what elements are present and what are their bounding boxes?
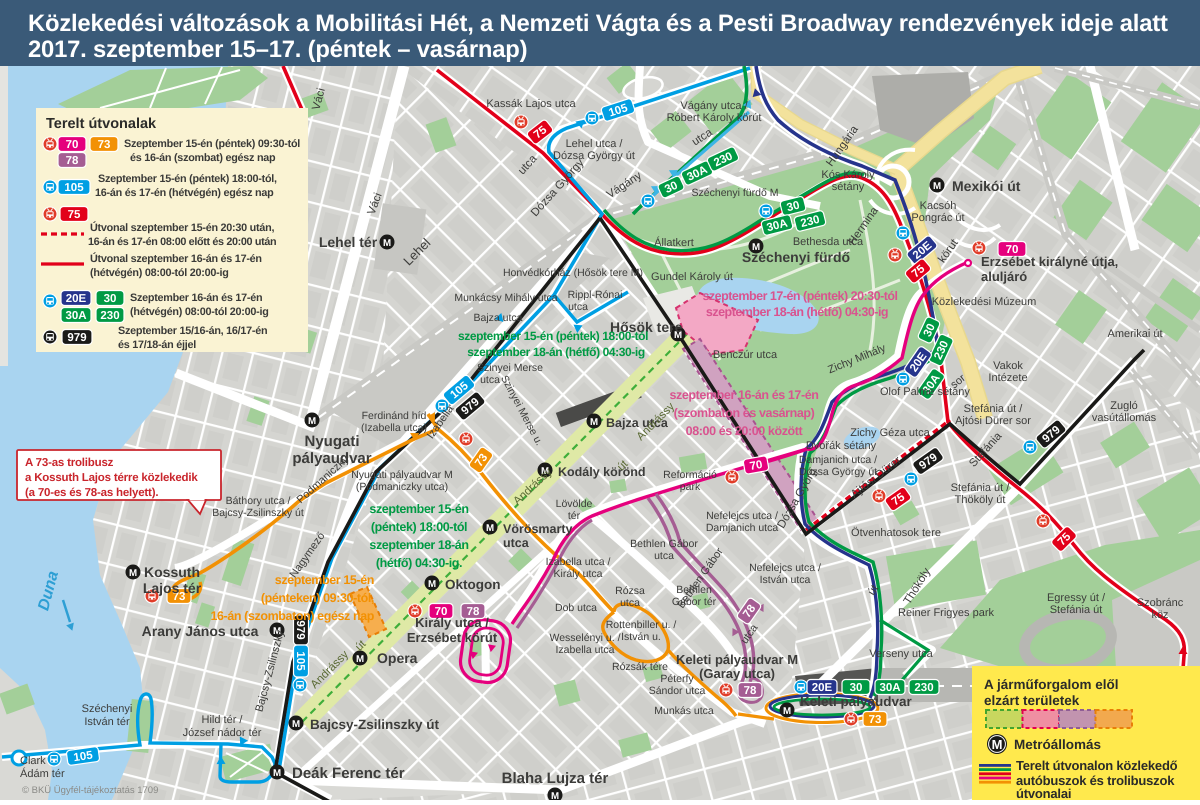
svg-text:M: M — [308, 416, 316, 427]
svg-text:útvonalai: útvonalai — [1016, 786, 1071, 800]
svg-text:Izabella utca /: Izabella utca / — [546, 556, 611, 568]
svg-text:szeptember 18-án (hétfő) 04:30: szeptember 18-án (hétfő) 04:30-ig — [467, 345, 645, 359]
svg-text:Metróállomás: Metróállomás — [1014, 737, 1101, 752]
svg-text:(Izabella utca): (Izabella utca) — [361, 422, 427, 434]
svg-text:78: 78 — [744, 685, 757, 697]
svg-text:Intézete: Intézete — [988, 372, 1027, 384]
svg-text:elzárt területek: elzárt területek — [984, 693, 1080, 708]
svg-text:Széchenyi fürdő: Széchenyi fürdő — [742, 249, 850, 265]
svg-text:Stefánia út /: Stefánia út / — [951, 482, 1011, 494]
svg-text:(Podmaniczky utca): (Podmaniczky utca) — [356, 481, 448, 493]
svg-text:Bajcsy-Zsilinszky út: Bajcsy-Zsilinszky út — [310, 717, 440, 732]
svg-text:Nyugati pályaudvar M: Nyugati pályaudvar M — [351, 469, 453, 481]
svg-text:István u.: István u. — [621, 631, 661, 643]
svg-text:Ajtósi Dürer sor: Ajtósi Dürer sor — [955, 415, 1031, 427]
svg-text:köz: köz — [1151, 609, 1168, 621]
svg-text:Erzsébet körút: Erzsébet körút — [407, 630, 498, 645]
svg-text:M: M — [356, 654, 364, 665]
svg-text:M: M — [590, 417, 598, 428]
svg-text:Széchenyi: Széchenyi — [82, 703, 133, 715]
svg-text:105: 105 — [64, 182, 84, 194]
svg-text:Egressy út /: Egressy út / — [1047, 592, 1106, 604]
svg-text:78: 78 — [66, 155, 79, 167]
svg-text:20E: 20E — [812, 682, 833, 694]
svg-text:utca: utca — [480, 374, 500, 386]
svg-text:aluljáró: aluljáró — [981, 269, 1027, 284]
svg-text:Ötvenhatosok tere: Ötvenhatosok tere — [851, 526, 941, 539]
svg-text:73: 73 — [98, 139, 111, 151]
svg-text:Bethesda utca: Bethesda utca — [793, 236, 864, 248]
svg-text:(Garay utca): (Garay utca) — [699, 666, 775, 681]
svg-text:Bethlen: Bethlen — [676, 584, 712, 596]
svg-text:Ádám tér: Ádám tér — [20, 767, 65, 780]
svg-text:Péterfy: Péterfy — [660, 673, 694, 685]
svg-text:(péntek) 18:00-tól: (péntek) 18:00-tól — [371, 520, 467, 534]
svg-text:Szeptember 15-én (péntek) 09:3: Szeptember 15-én (péntek) 09:30-tól — [124, 138, 300, 150]
svg-text:Reformáció: Reformáció — [663, 469, 717, 481]
svg-text:park: park — [680, 481, 701, 493]
svg-text:Zugló: Zugló — [1110, 400, 1138, 412]
svg-text:Kacsóh: Kacsóh — [920, 200, 957, 212]
svg-text:M: M — [933, 181, 941, 192]
svg-text:utca: utca — [620, 597, 640, 609]
svg-text:© BKÜ Ügyfél-tájékoztatás 1709: © BKÜ Ügyfél-tájékoztatás 1709 — [22, 785, 158, 796]
svg-text:(hétvégén) 08:00-tól 20:00-ig: (hétvégén) 08:00-tól 20:00-ig — [130, 306, 269, 318]
svg-text:Arany János utca: Arany János utca — [142, 623, 259, 639]
svg-text:20E: 20E — [66, 293, 87, 305]
svg-text:Sándor utca: Sándor utca — [649, 685, 706, 697]
svg-text:230: 230 — [914, 682, 933, 694]
svg-text:Wesselényi u. /: Wesselényi u. / — [549, 632, 620, 644]
svg-text:30: 30 — [850, 682, 863, 694]
svg-text:szeptember 18-án: szeptember 18-án — [369, 538, 468, 552]
svg-text:979: 979 — [67, 332, 86, 344]
svg-text:Vakok: Vakok — [993, 360, 1023, 372]
svg-text:Stefánia út: Stefánia út — [1050, 604, 1103, 616]
svg-text:70: 70 — [749, 459, 764, 473]
svg-text:Verseny utca: Verseny utca — [869, 648, 933, 660]
svg-text:Oktogon: Oktogon — [445, 577, 501, 592]
svg-text:Terelt útvonalak: Terelt útvonalak — [46, 116, 157, 132]
svg-text:Kossuth: Kossuth — [144, 564, 200, 580]
svg-text:Rottenbiller u. /: Rottenbiller u. / — [606, 619, 677, 631]
svg-text:Szobránc: Szobránc — [1137, 597, 1184, 609]
svg-text:Keleti pályaudvar M: Keleti pályaudvar M — [676, 652, 798, 667]
svg-text:a Kossuth Lajos térre közleked: a Kossuth Lajos térre közlekedik — [25, 472, 198, 484]
svg-text:Király utca /: Király utca / — [415, 615, 489, 630]
svg-text:Dob utca: Dob utca — [555, 602, 597, 614]
svg-text:Damjanich utca: Damjanich utca — [706, 522, 779, 534]
svg-text:30A: 30A — [879, 682, 900, 694]
svg-text:Honvédkórház (Hősök tere M): Honvédkórház (Hősök tere M) — [503, 267, 643, 279]
svg-text:16-án és 17-én 08:00 előtt és: 16-án és 17-én 08:00 előtt és 20:00 után — [88, 236, 276, 248]
svg-text:Clark: Clark — [20, 755, 46, 767]
svg-text:979: 979 — [294, 620, 306, 639]
svg-text:Dvořák sétány: Dvořák sétány — [806, 440, 877, 452]
svg-text:Erzsébet királyné útja,: Erzsébet királyné útja, — [981, 254, 1118, 269]
svg-text:(hétfő) 04:30-ig.: (hétfő) 04:30-ig. — [376, 556, 462, 570]
svg-text:szeptember 17-én (péntek) 20:3: szeptember 17-én (péntek) 20:30-tól — [702, 289, 897, 303]
svg-text:(hétvégén) 08:00-tól 20:00-ig: (hétvégén) 08:00-tól 20:00-ig — [90, 267, 229, 279]
svg-text:Lehel tér: Lehel tér — [319, 234, 378, 250]
svg-text:M: M — [783, 706, 791, 717]
svg-text:08:00 és 20:00 között: 08:00 és 20:00 között — [686, 424, 804, 438]
svg-text:Király utca: Király utca — [553, 568, 602, 580]
svg-text:Báthory utca /: Báthory utca / — [226, 495, 291, 507]
svg-text:utca: utca — [654, 550, 674, 562]
svg-text:Szeptember 15/16-án, 16/17-én: Szeptember 15/16-án, 16/17-én — [118, 325, 267, 337]
svg-text:Szinyei Merse: Szinyei Merse — [477, 362, 543, 374]
svg-text:sétány: sétány — [832, 181, 865, 193]
svg-text:Ferdinánd híd: Ferdinánd híd — [362, 410, 427, 422]
svg-text:utca: utca — [503, 536, 530, 550]
svg-text:Nefelejcs utca /: Nefelejcs utca / — [706, 510, 778, 522]
svg-text:A járműforgalom elől: A járműforgalom elől — [984, 677, 1119, 692]
svg-text:Opera: Opera — [377, 650, 418, 666]
svg-text:Közlekedési Múzeum: Közlekedési Múzeum — [932, 296, 1037, 308]
svg-text:Lehel utca /: Lehel utca / — [566, 138, 624, 150]
svg-text:szeptember 15-én: szeptember 15-én — [369, 502, 468, 516]
svg-text:Nyugati: Nyugati — [304, 433, 359, 450]
svg-text:és 17/18-án éjjel: és 17/18-án éjjel — [118, 339, 196, 351]
svg-text:A 73-as trolibusz: A 73-as trolibusz — [25, 457, 114, 469]
svg-text:Keleti pályaudvar: Keleti pályaudvar — [800, 694, 913, 709]
svg-text:Pongrác út: Pongrác út — [911, 212, 964, 224]
svg-text:M: M — [273, 768, 281, 779]
svg-text:szeptember 15-én (péntek) 18:0: szeptember 15-én (péntek) 18:00-tól — [458, 329, 648, 343]
svg-text:Reiner Frigyes park: Reiner Frigyes park — [898, 607, 994, 619]
svg-text:Bajza utca: Bajza utca — [473, 312, 522, 324]
svg-text:Gábor tér: Gábor tér — [672, 596, 717, 608]
svg-text:M: M — [428, 579, 436, 590]
svg-text:30A: 30A — [65, 310, 86, 322]
svg-text:Szeptember 15-én (péntek) 18:0: Szeptember 15-én (péntek) 18:00-tól, — [98, 173, 277, 185]
svg-text:Róbert Károly körút: Róbert Károly körút — [667, 112, 762, 124]
svg-text:Bethlen Gábor: Bethlen Gábor — [630, 538, 698, 550]
svg-text:Munkás utca: Munkás utca — [654, 705, 714, 717]
svg-text:Közlekedési változások a Mobil: Közlekedési változások a Mobilitási Hét,… — [28, 10, 1168, 37]
svg-text:(a 70-es és 78-as helyett).: (a 70-es és 78-as helyett). — [25, 487, 158, 499]
svg-text:Dózsa György út: Dózsa György út — [553, 150, 635, 162]
svg-text:(pénteken) 09:30-tól,: (pénteken) 09:30-tól, — [261, 591, 374, 605]
svg-text:Rippl-Rónai: Rippl-Rónai — [568, 289, 623, 301]
svg-text:Kassák Lajos utca: Kassák Lajos utca — [486, 98, 576, 110]
svg-text:73: 73 — [869, 714, 882, 726]
svg-text:Útvonal szeptember 16-án és 17: Útvonal szeptember 16-án és 17-én — [90, 252, 262, 265]
svg-text:Széchenyi fürdő M: Széchenyi fürdő M — [692, 187, 779, 199]
svg-text:vasútállomás: vasútállomás — [1092, 412, 1157, 424]
svg-text:Benczúr utca: Benczúr utca — [713, 349, 778, 361]
svg-text:Vágány utca /: Vágány utca / — [680, 100, 748, 112]
svg-text:Izabella utca: Izabella utca — [556, 644, 615, 656]
svg-text:József nádor tér: József nádor tér — [183, 727, 262, 739]
svg-text:Hild tér /: Hild tér / — [202, 714, 244, 726]
svg-text:M: M — [551, 791, 559, 800]
svg-text:Blaha Lujza tér: Blaha Lujza tér — [502, 770, 609, 787]
svg-text:Rózsák tére: Rózsák tére — [612, 661, 668, 673]
svg-text:Lajos tér: Lajos tér — [143, 580, 202, 596]
svg-text:Zichy Géza utca: Zichy Géza utca — [850, 427, 930, 439]
svg-text:(szombaton és vasárnap): (szombaton és vasárnap) — [674, 406, 815, 420]
svg-text:István tér: István tér — [84, 716, 130, 728]
svg-text:2017. szeptember 15–17. (pénte: 2017. szeptember 15–17. (péntek – vasárn… — [28, 36, 527, 63]
svg-text:M: M — [992, 737, 1003, 752]
svg-text:Bajcsy-Zsilinszky út: Bajcsy-Zsilinszky út — [212, 507, 304, 519]
svg-text:Kós Károly: Kós Károly — [821, 169, 875, 181]
svg-text:70: 70 — [66, 139, 79, 151]
svg-text:16-án és 17-én (hétvégén) egés: 16-án és 17-én (hétvégén) egész nap — [95, 187, 274, 199]
svg-text:Damjanich utca /: Damjanich utca / — [799, 454, 877, 466]
svg-text:Vörösmarty: Vörösmarty — [503, 522, 573, 536]
svg-text:Amerikai út: Amerikai út — [1107, 328, 1162, 340]
svg-text:Útvonal szeptember 15-én 20:30: Útvonal szeptember 15-én 20:30 után, — [90, 221, 274, 234]
svg-text:M: M — [383, 238, 391, 249]
svg-text:Lövölde: Lövölde — [556, 498, 593, 510]
svg-text:105: 105 — [294, 651, 306, 671]
svg-text:16-án (szombaton) egész nap: 16-án (szombaton) egész nap — [210, 609, 374, 623]
svg-text:Mexikói út: Mexikói út — [952, 178, 1021, 194]
svg-text:szeptember 15-én: szeptember 15-én — [275, 573, 374, 587]
svg-text:szeptember 18-án (hétfő) 04:30: szeptember 18-án (hétfő) 04:30-ig — [706, 305, 888, 319]
svg-text:Thököly út: Thököly út — [955, 494, 1006, 506]
svg-text:Rózsa: Rózsa — [615, 585, 645, 597]
svg-text:tér: tér — [568, 510, 581, 522]
svg-text:Deák Ferenc tér: Deák Ferenc tér — [292, 765, 405, 782]
svg-text:Terelt útvonalon közlekedő: Terelt útvonalon közlekedő — [1016, 758, 1178, 773]
svg-text:Munkácsy Mihály utca: Munkácsy Mihály utca — [454, 292, 557, 304]
svg-text:szeptember 16-án és 17-én: szeptember 16-án és 17-én — [669, 388, 818, 402]
svg-text:Stefánia út /: Stefánia út / — [964, 403, 1024, 415]
svg-text:utca: utca — [568, 301, 588, 313]
svg-text:230: 230 — [100, 310, 119, 322]
svg-text:M: M — [129, 568, 137, 579]
svg-text:és 16-án (szombat) egész nap: és 16-án (szombat) egész nap — [130, 152, 276, 164]
svg-text:Állatkert: Állatkert — [654, 236, 694, 249]
svg-text:Kodály körönd: Kodály körönd — [558, 465, 646, 479]
svg-text:Nefelejcs utca /: Nefelejcs utca / — [749, 562, 821, 574]
svg-text:30: 30 — [104, 293, 117, 305]
svg-text:Gundel Károly út: Gundel Károly út — [651, 271, 733, 283]
svg-text:Szeptember 16-án és 17-én: Szeptember 16-án és 17-én — [130, 292, 262, 304]
svg-text:István utca: István utca — [760, 574, 811, 586]
svg-text:M: M — [486, 523, 494, 534]
svg-text:75: 75 — [68, 209, 81, 221]
svg-text:M: M — [292, 719, 300, 730]
